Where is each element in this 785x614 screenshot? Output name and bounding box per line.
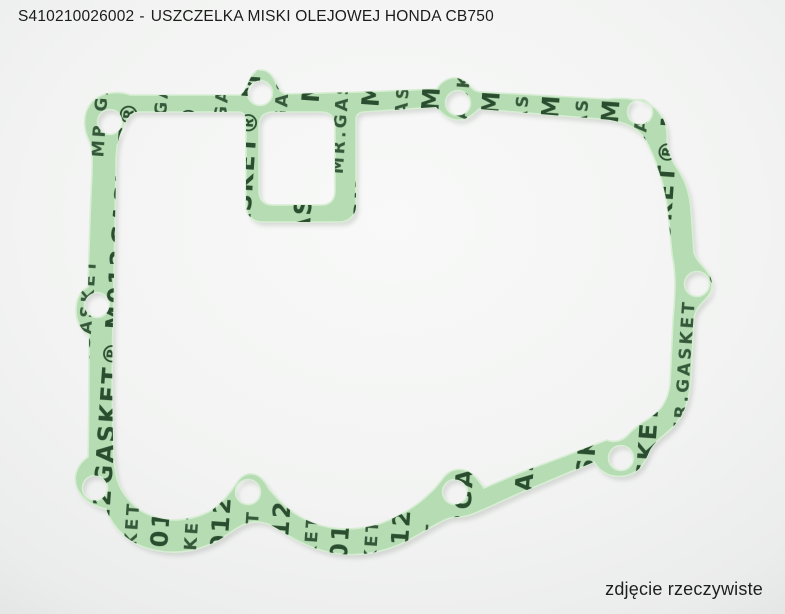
product-photo-page: GASKET® M0128 MR.GASKET S410210026002-US… (0, 0, 785, 614)
title-separator: - (139, 8, 144, 25)
gasket-photo: GASKET® M0128 MR.GASKET (0, 0, 785, 614)
part-number: S410210026002 (18, 8, 134, 25)
image-title: S410210026002-USZCZELKA MISKI OLEJOWEJ H… (18, 7, 494, 26)
product-name: USZCZELKA MISKI OLEJOWEJ HONDA CB750 (151, 8, 494, 25)
photo-caption: zdjęcie rzeczywiste (605, 579, 763, 600)
